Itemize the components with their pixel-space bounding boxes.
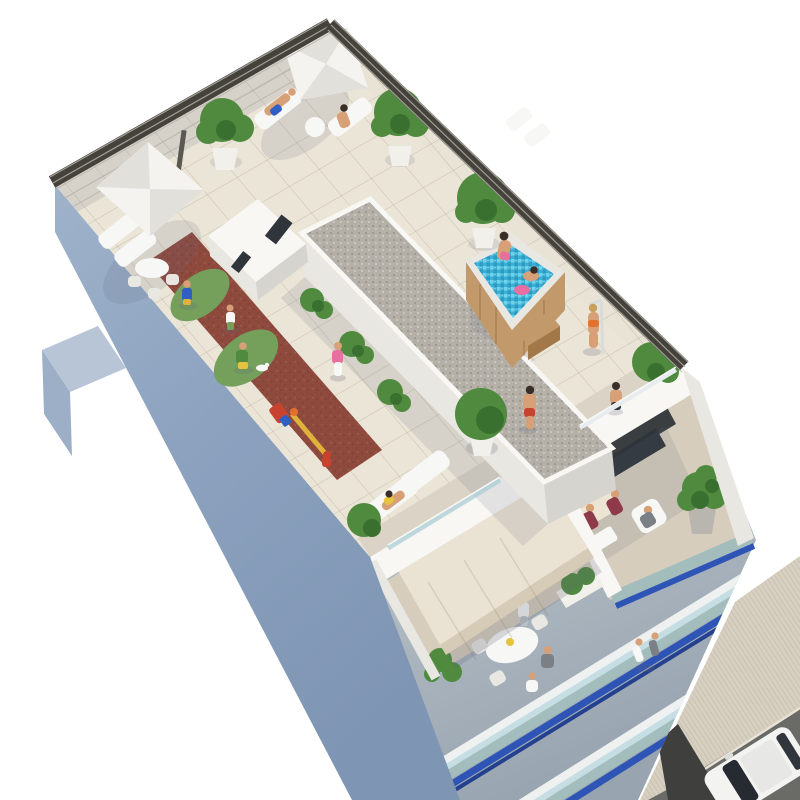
lounger-palm bbox=[347, 503, 381, 537]
render-image bbox=[0, 0, 800, 800]
scene-canvas bbox=[0, 0, 800, 800]
bistro-table bbox=[135, 258, 169, 278]
knit-pouf bbox=[305, 117, 325, 137]
